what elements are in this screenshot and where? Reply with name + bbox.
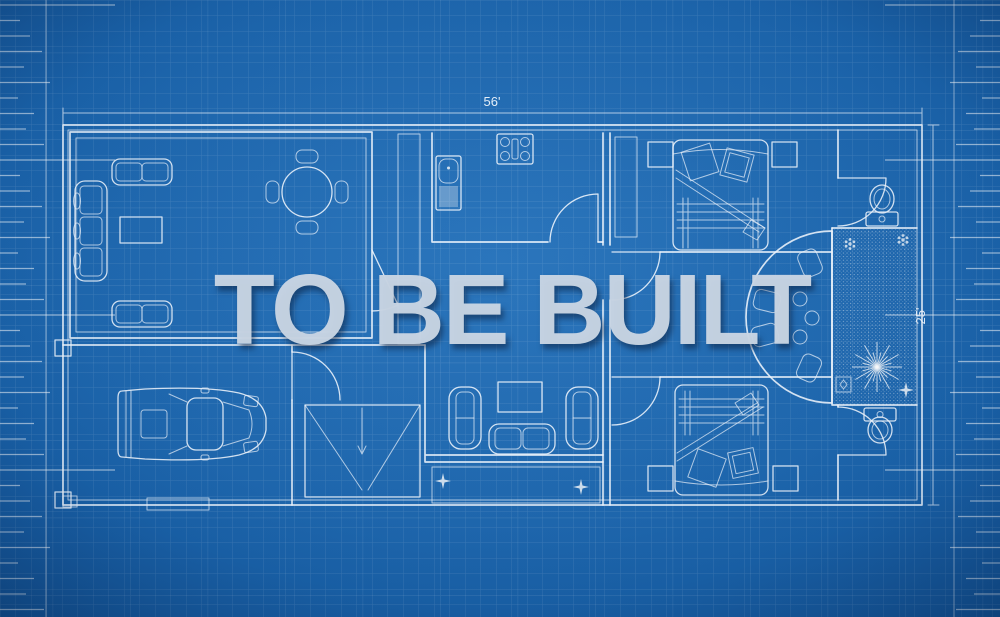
overlay-title: TO BE BUILT (214, 254, 812, 366)
blueprint-canvas: 56' 25' (0, 0, 1000, 617)
blueprint-svg: 56' 25' (0, 0, 1000, 617)
